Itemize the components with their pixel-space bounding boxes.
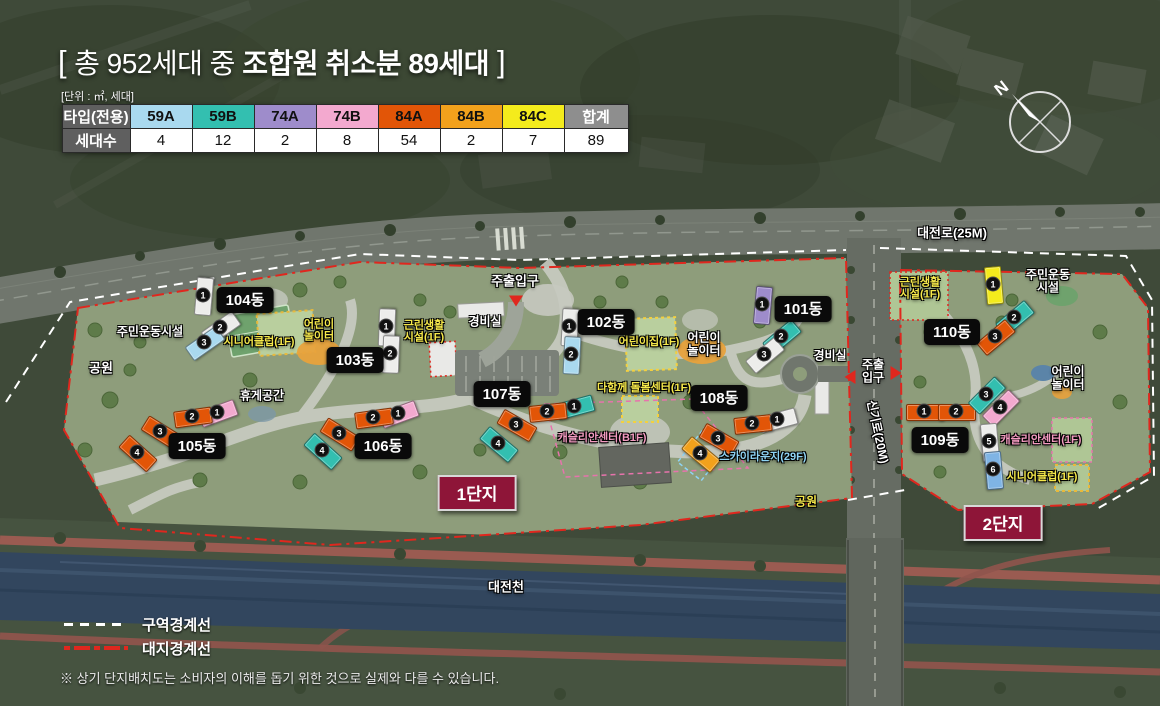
building-109동-unit-6-badge: 6 bbox=[986, 462, 1001, 477]
footnote: ※ 상기 단지배치도는 소비자의 이해를 돕기 위한 것으로 실제와 다를 수 … bbox=[60, 668, 499, 687]
building-110동-unit-1-badge: 1 bbox=[986, 277, 1001, 292]
building-107동-unit-1-badge: 1 bbox=[567, 399, 582, 414]
building-103동-unit-1-badge: 1 bbox=[379, 319, 394, 334]
entrance-marker-right-2 bbox=[891, 366, 902, 380]
building-104동-unit-2-badge: 2 bbox=[213, 320, 228, 335]
title-close-bracket: ] bbox=[497, 44, 505, 80]
table-count-84A: 54 bbox=[378, 128, 441, 153]
legend-row-site: 대지경계선 bbox=[64, 636, 211, 660]
building-label-104동: 104동 bbox=[217, 287, 274, 313]
building-101동-unit-3-badge: 3 bbox=[757, 347, 772, 362]
building-108동-unit-2-badge: 2 bbox=[745, 416, 760, 431]
map-label-16: 주출 입구 bbox=[862, 359, 884, 386]
building-label-106동: 106동 bbox=[355, 433, 412, 459]
building-109동-unit-4-badge: 4 bbox=[993, 400, 1008, 415]
district-label-1단지: 1단지 bbox=[438, 475, 517, 511]
building-101동-unit-2-badge: 2 bbox=[774, 329, 789, 344]
page-title: [ 총 952세대 중 조합원 취소분 89세대 ] bbox=[58, 42, 505, 82]
map-label-21: 공원 bbox=[795, 495, 817, 508]
title-bold: 조합원 취소분 89세대 bbox=[242, 48, 489, 79]
building-label-107동: 107동 bbox=[474, 381, 531, 407]
compass: N bbox=[985, 70, 1085, 170]
map-label-20: 시니어클럽(1F) bbox=[1007, 471, 1078, 483]
building-101동-unit-1-badge: 1 bbox=[755, 297, 770, 312]
site-boundary-line-sample bbox=[64, 646, 128, 650]
legend: 구역경계선 대지경계선 bbox=[64, 612, 211, 660]
table-header-59A: 59A bbox=[130, 104, 193, 129]
entrance-marker-left-1 bbox=[845, 370, 856, 384]
building-label-108동: 108동 bbox=[691, 385, 748, 411]
building-108동-unit-3-badge: 3 bbox=[711, 431, 726, 446]
map-label-22: 휴게공간 bbox=[240, 389, 284, 402]
building-108동-unit-4-badge: 4 bbox=[693, 446, 708, 461]
entrance-marker-down-0 bbox=[509, 296, 523, 307]
building-label-103동: 103동 bbox=[327, 347, 384, 373]
unit-note: [단위 : ㎡, 세대] bbox=[61, 88, 134, 104]
building-105동-unit-2-badge: 2 bbox=[185, 409, 200, 424]
building-107동-unit-3-badge: 3 bbox=[509, 417, 524, 432]
title-normal: 총 952세대 중 bbox=[74, 48, 242, 79]
building-label-101동: 101동 bbox=[775, 296, 832, 322]
building-106동-unit-3-badge: 3 bbox=[332, 426, 347, 441]
title-open-bracket: [ bbox=[58, 44, 66, 80]
table-count-74A: 2 bbox=[254, 128, 317, 153]
building-109동-unit-3-badge: 3 bbox=[979, 387, 994, 402]
map-label-6: 주출입구 bbox=[491, 275, 539, 290]
building-110동-unit-3-badge: 3 bbox=[988, 329, 1003, 344]
site-boundary-label: 대지경계선 bbox=[142, 638, 211, 659]
map-label-15: 주민운동 시설 bbox=[1026, 269, 1070, 296]
building-107동-unit-2-badge: 2 bbox=[540, 404, 555, 419]
zone-boundary-line-sample bbox=[64, 623, 128, 626]
table-header-84B: 84B bbox=[440, 104, 503, 129]
table-header-84C: 84C bbox=[502, 104, 565, 129]
map-label-5: 경비실 bbox=[468, 315, 501, 328]
building-106동-unit-1-badge: 1 bbox=[391, 406, 406, 421]
map-label-12: 경비실 bbox=[813, 349, 846, 362]
building-108동-unit-1-badge: 1 bbox=[770, 412, 785, 427]
map-label-1: 공원 bbox=[89, 362, 113, 377]
table-header-74B: 74B bbox=[316, 104, 379, 129]
building-106동-unit-4-badge: 4 bbox=[315, 443, 330, 458]
map-label-4: 근린생활 시설(1F) bbox=[404, 320, 444, 345]
table-count-84C: 7 bbox=[502, 128, 565, 153]
zone-boundary-label: 구역경계선 bbox=[142, 614, 211, 635]
compass-north-label: N bbox=[991, 77, 1012, 100]
building-103동-unit-2-badge: 2 bbox=[383, 346, 398, 361]
map-label-0: 주민운동시설 bbox=[117, 325, 183, 338]
table-count-74B: 8 bbox=[316, 128, 379, 153]
table-count-59B: 12 bbox=[192, 128, 255, 153]
building-109동-unit-1-badge: 1 bbox=[917, 404, 932, 419]
building-104동-unit-3-badge: 3 bbox=[197, 335, 212, 350]
map-label-7: 어린이집(1F) bbox=[619, 336, 680, 348]
building-label-105동: 105동 bbox=[169, 433, 226, 459]
map-label-13: 대전로(25M) bbox=[917, 227, 987, 242]
building-105동-unit-3-badge: 3 bbox=[153, 424, 168, 439]
building-label-110동: 110동 bbox=[924, 319, 980, 345]
building-102동-unit-1-badge: 1 bbox=[562, 319, 577, 334]
table-count-59A: 4 bbox=[130, 128, 193, 153]
building-label-102동: 102동 bbox=[578, 309, 635, 335]
site-plan-page: [ 총 952세대 중 조합원 취소분 89세대 ] [단위 : ㎡, 세대] … bbox=[0, 0, 1160, 706]
building-105동-unit-1-badge: 1 bbox=[210, 405, 225, 420]
map-label-18: 어린이 놀이터 bbox=[1051, 366, 1084, 393]
table-row-label-count: 세대수 bbox=[62, 128, 131, 153]
map-label-19: 캐슬리안센터(1F) bbox=[1001, 434, 1082, 446]
map-label-14: 근린생활 시설(1F) bbox=[900, 277, 940, 302]
map-label-11: 스카이라운지(29F) bbox=[719, 451, 806, 463]
map-label-10: 캐슬리안센터(B1F) bbox=[558, 432, 647, 444]
map-label-2: 시니어클럽(1F) bbox=[224, 336, 295, 348]
building-107동-unit-4-badge: 4 bbox=[491, 436, 506, 451]
building-106동-unit-2-badge: 2 bbox=[366, 410, 381, 425]
table-header-84A: 84A bbox=[378, 104, 441, 129]
legend-row-zone: 구역경계선 bbox=[64, 612, 211, 636]
table-header-74A: 74A bbox=[254, 104, 317, 129]
building-109동-unit-2-badge: 2 bbox=[949, 404, 964, 419]
table-count-84B: 2 bbox=[440, 128, 503, 153]
map-label-9: 다함께 돌봄센터(1F) bbox=[597, 382, 691, 394]
building-105동-unit-4-badge: 4 bbox=[130, 445, 145, 460]
building-104동-unit-1-badge: 1 bbox=[196, 288, 211, 303]
building-label-109동: 109동 bbox=[912, 427, 969, 453]
table-header-type: 타입(전용) bbox=[62, 104, 131, 129]
type-table: 타입(전용)59A59B74A74B84A84B84C합계세대수41228542… bbox=[62, 104, 628, 152]
table-count-total: 89 bbox=[564, 128, 629, 153]
building-109동-unit-5-badge: 5 bbox=[982, 434, 997, 449]
title-text: 총 952세대 중 조합원 취소분 89세대 bbox=[74, 42, 489, 82]
map-label-23: 대전천 bbox=[488, 581, 524, 596]
district-label-2단지: 2단지 bbox=[964, 505, 1043, 541]
map-label-3: 어린이 놀이터 bbox=[304, 319, 334, 344]
building-102동-unit-2-badge: 2 bbox=[564, 347, 579, 362]
map-label-8: 어린이 놀이터 bbox=[687, 332, 720, 359]
table-header-59B: 59B bbox=[192, 104, 255, 129]
building-110동-unit-2-badge: 2 bbox=[1007, 310, 1022, 325]
table-header-total: 합계 bbox=[564, 104, 629, 129]
